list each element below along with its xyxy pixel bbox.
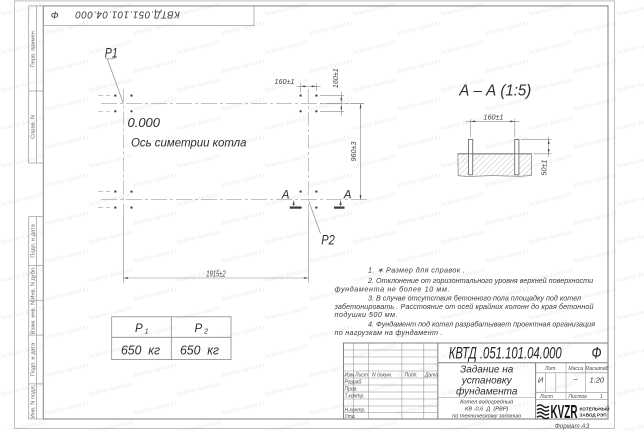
svg-text:Лит.: Лит. [544, 366, 557, 372]
svg-text:по техническому заданию: по техническому заданию [452, 413, 522, 419]
svg-text:Масса: Масса [568, 366, 583, 372]
svg-text:1. ∗ Размер для справок .: 1. ∗ Размер для справок . [368, 265, 465, 274]
svg-text:Листов: Листов [568, 394, 588, 400]
svg-text:160±1: 160±1 [484, 112, 504, 121]
svg-text:фундамента не более 10 мм.: фундамента не более 10 мм. [335, 284, 450, 293]
svg-text:50±1: 50±1 [539, 160, 548, 176]
svg-text:Котел водогрейный: Котел водогрейный [460, 399, 513, 406]
svg-text:подушки 500 мм.: подушки 500 мм. [335, 310, 398, 319]
svg-text:Разраб.: Разраб. [345, 380, 363, 386]
svg-text:И: И [538, 376, 544, 385]
svg-text:Масштаб: Масштаб [585, 366, 609, 372]
svg-text:KVZR: KVZR [551, 401, 578, 422]
svg-text:Пров.: Пров. [345, 387, 358, 393]
svg-text:Подп. и дата: Подп. и дата [30, 223, 36, 257]
svg-text:КВ -0,6 Д (РВР): КВ -0,6 Д (РВР) [465, 406, 508, 412]
svg-text:Ф: Ф [592, 344, 602, 362]
svg-text:КВТД .051.101.04.000: КВТД .051.101.04.000 [449, 344, 563, 362]
svg-text:Лист: Лист [539, 394, 553, 400]
svg-text:Формат А3: Формат А3 [555, 423, 590, 430]
svg-text:Подп.: Подп. [405, 373, 418, 379]
svg-text:ЗАВОД РЭП: ЗАВОД РЭП [580, 412, 607, 417]
svg-text:Инв. N дубл.: Инв. N дубл. [30, 266, 36, 300]
svg-text:А: А [281, 190, 290, 202]
svg-text:Утв.: Утв. [345, 414, 356, 420]
svg-text:КВТД.051.101.04.000 Ф: КВТД.051.101.04.000 Ф [51, 8, 180, 19]
svg-text:160±1: 160±1 [275, 77, 295, 86]
svg-text:Подп. и дата: Подп. и дата [30, 342, 36, 376]
svg-text:по нагрузкам на фундамент .: по нагрузкам на фундамент . [335, 328, 443, 337]
svg-text:1915±2: 1915±2 [206, 269, 226, 278]
svg-text:КОТЕЛЬНЫЙ: КОТЕЛЬНЫЙ [580, 405, 610, 412]
svg-text:Н.контр.: Н.контр. [345, 407, 366, 413]
svg-text:А: А [343, 190, 352, 202]
svg-text:P1: P1 [105, 45, 118, 60]
svg-text:Справ. N: Справ. N [30, 115, 36, 139]
svg-text:установку: установку [461, 376, 513, 387]
svg-text:фундамента: фундамента [456, 386, 518, 398]
svg-text:1: 1 [600, 394, 603, 400]
svg-text:N докум.: N докум. [372, 373, 392, 379]
svg-text:А – А (1:5): А – А (1:5) [458, 83, 531, 100]
svg-text:–: – [573, 375, 579, 384]
svg-text:0.000: 0.000 [128, 115, 161, 130]
svg-text:Ось симетрии котла: Ось симетрии котла [131, 135, 247, 149]
svg-text:Задание на: Задание на [460, 365, 514, 376]
svg-text:Дата: Дата [424, 373, 438, 379]
svg-text:160±1: 160±1 [331, 68, 340, 88]
svg-text:650 кг: 650 кг [180, 344, 219, 358]
svg-text:1:20: 1:20 [589, 376, 604, 385]
svg-text:Перв. примен.: Перв. примен. [30, 29, 36, 67]
svg-text:Т.контр.: Т.контр. [345, 394, 365, 400]
svg-text:Инв. N подл.: Инв. N подл. [30, 384, 36, 418]
svg-text:650 кг: 650 кг [121, 344, 160, 358]
svg-text:P2: P2 [321, 232, 335, 247]
svg-text:960±3: 960±3 [349, 142, 358, 162]
svg-text:Взам. инв. N: Взам. инв. N [30, 301, 36, 334]
svg-text:Изм.Лист: Изм.Лист [345, 373, 369, 379]
